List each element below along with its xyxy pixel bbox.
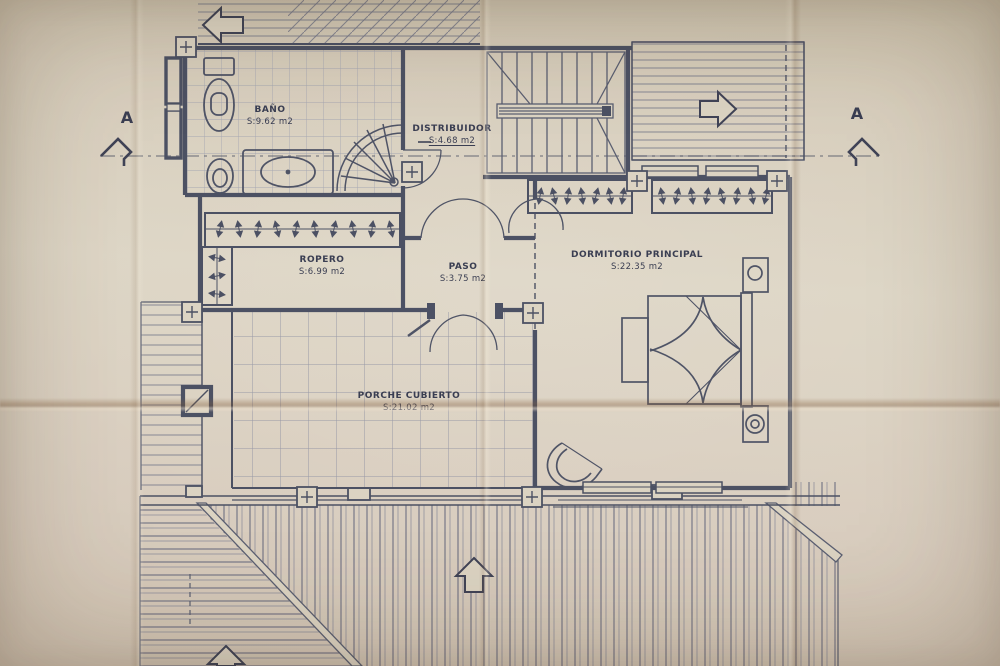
section-marker-left-icon xyxy=(101,139,131,166)
blueprint-photo: BAÑO S:9.62 m2 DISTRIBUIDOR S:4.68 m2 RO… xyxy=(0,0,1000,666)
room-label-porche: PORCHE CUBIERTO S:21.02 m2 xyxy=(358,390,461,414)
room-area: S:6.99 m2 xyxy=(299,266,345,278)
section-marker-left-label: A xyxy=(121,108,133,127)
room-name: PASO xyxy=(440,261,486,273)
room-label-dormitorio: DORMITORIO PRINCIPAL S:22.35 m2 xyxy=(571,249,703,273)
room-label-ropero: ROPERO S:6.99 m2 xyxy=(299,254,345,278)
bedroom-wardrobes xyxy=(528,180,772,213)
room-area: S:21.02 m2 xyxy=(358,402,461,414)
section-marker-right-icon xyxy=(849,139,879,166)
room-name: DISTRIBUIDOR xyxy=(412,123,491,135)
room-label-bano: BAÑO S:9.62 m2 xyxy=(247,104,293,128)
room-name: PORCHE CUBIERTO xyxy=(358,390,461,402)
floor-plan-drawing xyxy=(0,0,1000,666)
lamp-icon xyxy=(746,415,764,433)
nightstand-top xyxy=(743,258,768,292)
section-marker-right-label: A xyxy=(851,104,863,123)
corner-chair-icon xyxy=(547,443,602,488)
room-name: ROPERO xyxy=(299,254,345,266)
bed-icon xyxy=(622,258,768,442)
room-name: BAÑO xyxy=(247,104,293,116)
room-label-distribuidor: DISTRIBUIDOR S:4.68 m2 xyxy=(412,123,491,147)
door-jamb xyxy=(427,303,435,319)
room-area: S:22.35 m2 xyxy=(571,261,703,273)
room-area: S:3.75 m2 xyxy=(440,273,486,285)
room-area: S:4.68 m2 xyxy=(412,135,491,147)
room-area: S:9.62 m2 xyxy=(247,116,293,128)
door-jamb xyxy=(495,303,503,319)
room-label-paso: PASO S:3.75 m2 xyxy=(440,261,486,285)
room-name: DORMITORIO PRINCIPAL xyxy=(571,249,703,261)
staircase xyxy=(487,52,625,173)
